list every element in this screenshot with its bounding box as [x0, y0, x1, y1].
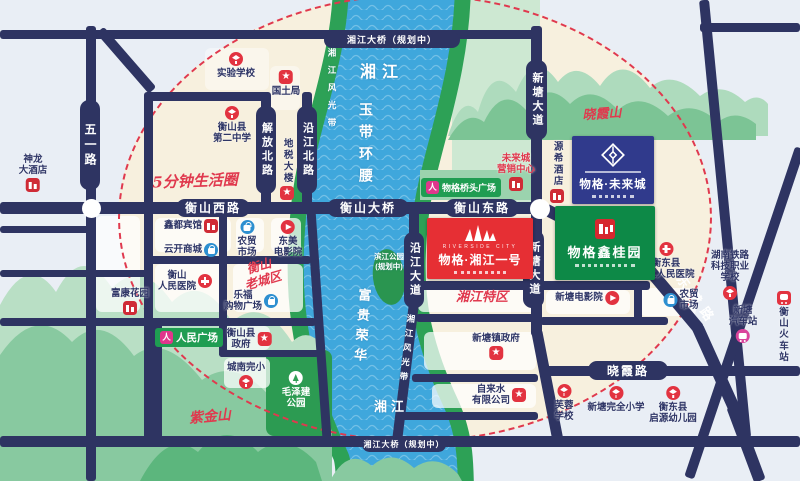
poi-label: 富康花园 [111, 288, 149, 299]
poi-label: 神龙 大酒店 [19, 154, 48, 176]
location-map: 五一路 解放北路 沿江北路 衡山西路 衡山大桥 衡山东路 新塘大道 新塘大道 沿… [0, 0, 800, 481]
poi-label: 新塘 汽车站 [729, 305, 758, 327]
poi-cine: 新塘电影院 [555, 291, 619, 305]
road-label-hengshanbridge: 衡山大桥 [327, 199, 409, 217]
road-label-yanjiangbei: 沿江北路 [297, 106, 317, 194]
poi-shop: 农贸 市场 [663, 289, 698, 311]
poi-label: 地税大楼 [281, 138, 292, 184]
poi-label: 城南完小 [227, 362, 265, 373]
riverside-eyebrow: RIVERSIDE CITY [443, 244, 518, 250]
tree-icon [289, 371, 303, 385]
poi-cine: 东美 电影院 [274, 220, 303, 258]
road-northeast [700, 23, 800, 32]
road-xiaoxia [540, 366, 800, 376]
junction-circle [82, 199, 101, 218]
qiaotou-plaza: 物格桥头广场 [421, 178, 501, 197]
riverside-logo-icon [462, 224, 498, 242]
poi-hotel: 源希酒店 [550, 141, 564, 203]
road-grid-east [416, 314, 538, 322]
poi-school: 芙蓉 学校 [554, 384, 573, 422]
poi-school: 衡山县 第二中学 [213, 106, 251, 144]
school-icon [557, 384, 571, 398]
micro-text-dots [592, 195, 634, 198]
poi-label: 衡东县 启源幼儿园 [649, 402, 697, 424]
star-icon [512, 388, 526, 402]
bus-icon [736, 329, 750, 343]
school-icon [666, 386, 680, 400]
hotel-icon [204, 219, 218, 233]
poi-school: 衡东县 启源幼儿园 [649, 386, 697, 424]
poi-shop: 云开商城 [164, 243, 218, 257]
poi-label: 芙蓉 学校 [554, 400, 573, 422]
road-grid-east [634, 281, 642, 325]
scenic-belt-west: 湘江风光带 [326, 48, 338, 136]
road-grid-east [402, 412, 538, 420]
micro-text-dots [454, 271, 506, 274]
bldg-icon [509, 177, 523, 191]
qiaotou-plaza-label: 物格桥头广场 [442, 181, 496, 194]
poi-shop: 乐福 购物广场 [224, 290, 278, 312]
poi-label: 农贸 市场 [237, 236, 256, 258]
hosp-icon [198, 274, 212, 288]
road-grid [146, 92, 270, 101]
poi-bus: 新塘 汽车站 [729, 305, 758, 343]
poi-school: 新塘完全小学 [587, 386, 644, 413]
star-icon [279, 70, 293, 84]
poi-school: 湖南铁路 科技职业 学校 [711, 250, 749, 300]
poi-label: 衡山县 第二中学 [213, 122, 251, 144]
school-icon [609, 386, 623, 400]
poi-train: 衡山 火车站 [776, 291, 792, 363]
river-name-top: 湘江 [360, 58, 404, 82]
road-label-xintang-n: 新塘大道 [526, 60, 547, 140]
road-label-hengshandong: 衡山东路 [445, 199, 519, 217]
school-icon [229, 52, 243, 66]
road-grid-east [416, 281, 538, 290]
poi-tree: 毛泽建 公园 [282, 371, 311, 409]
poi-label: 湖南铁路 科技职业 学校 [711, 250, 749, 284]
junction-circle [530, 199, 550, 219]
poi-label: 鑫都宾馆 [164, 220, 202, 231]
poi-label: 新塘镇政府 [472, 333, 520, 344]
star-icon [280, 186, 294, 200]
renmin-plaza-label: 人民广场 [176, 330, 218, 345]
poi-label: 新塘电影院 [555, 292, 603, 303]
poi-label: 新塘完全小学 [587, 402, 644, 413]
bridge-label-planned-south: 湘江大桥（规划中） [362, 437, 446, 452]
river-text-yudai: 玉带环腰 [356, 102, 376, 190]
poi-label: 衡山 人民医院 [158, 270, 196, 292]
hotel-icon [550, 189, 564, 203]
poi-school: 实验学校 [217, 52, 255, 79]
school-icon [225, 106, 239, 120]
poi-star: 新塘镇政府 [472, 333, 520, 360]
road-label-yanjiangda: 沿江大道 [404, 232, 424, 308]
poi-star: 衡山县 政府 [227, 328, 272, 350]
poi-hotel: 神龙 大酒店 [19, 154, 48, 192]
project-card-xingui: 物格鑫桂园 [555, 206, 655, 280]
future-city-name: 物格·未来城 [579, 176, 646, 192]
train-icon [777, 291, 791, 305]
shop-icon [663, 293, 677, 307]
riverside-name: 物格·湘江一号 [439, 251, 522, 268]
road-grid [219, 350, 319, 357]
poi-label: 云开商城 [164, 244, 202, 255]
poi-label: 源希酒店 [551, 141, 562, 187]
poi-hosp: 衡山 人民医院 [158, 270, 212, 292]
school-icon [723, 286, 737, 300]
poi-star: 地税大楼 [280, 138, 294, 200]
micro-text-bar [585, 171, 641, 173]
road-grid [0, 226, 91, 233]
micro-text-dots [575, 264, 635, 267]
cine-icon [605, 291, 619, 305]
cine-icon [281, 220, 295, 234]
script-xiangjiang-tequ: 湘江特区 [447, 290, 517, 306]
project-card-future-city: 物格·未来城 [572, 136, 654, 204]
poi-label: 自来水 有限公司 [472, 384, 510, 406]
renmin-plaza: 人民广场 [155, 328, 223, 347]
script-five-minute: 5分钟生活圈 [145, 170, 246, 191]
road-wuyi [86, 26, 96, 481]
shop-icon [204, 243, 218, 257]
poi-label: 国土局 [272, 86, 301, 97]
poi-bldg: 未来城 营销中心 [497, 153, 535, 191]
hosp-icon [659, 242, 673, 256]
poi-label: 实验学校 [217, 68, 255, 79]
poi-label: 乐福 购物广场 [224, 290, 262, 312]
road-grid-east [412, 374, 538, 382]
road-label-hengshanxi: 衡山西路 [176, 199, 250, 217]
river-name-bottom: 湘江 [374, 396, 408, 415]
poi-star: 自来水 有限公司 [472, 384, 526, 406]
star-icon [489, 346, 503, 360]
plaza-icon [160, 331, 173, 344]
shop-icon [240, 220, 254, 234]
island-label: 滨江公园 (规划中) [371, 252, 407, 272]
poi-hotel: 鑫都宾馆 [164, 219, 218, 233]
xingui-logo-icon [595, 219, 615, 239]
bldg-icon [123, 301, 137, 315]
xingui-name: 物格鑫桂园 [567, 242, 642, 261]
poi-label: 农贸 市场 [679, 289, 698, 311]
star-icon [257, 332, 271, 346]
road-label-wuyi: 五一路 [80, 100, 100, 190]
shop-icon [264, 294, 278, 308]
bridge-label-planned-north: 湘江大桥（规划中） [324, 32, 460, 48]
road-grid [144, 92, 153, 445]
poi-school: 城南完小 [227, 362, 265, 389]
poi-star: 国土局 [272, 70, 301, 97]
plaza-icon [426, 181, 439, 194]
road-grid [0, 270, 150, 277]
poi-label: 东美 电影院 [274, 236, 303, 258]
project-card-riverside: RIVERSIDE CITY 物格·湘江一号 [427, 218, 533, 279]
road-label-jiefangbei: 解放北路 [256, 106, 276, 194]
hotel-icon [26, 178, 40, 192]
poi-label: 毛泽建 公园 [282, 387, 311, 409]
poi-label: 未来城 营销中心 [497, 153, 535, 175]
future-city-logo-icon [600, 142, 626, 168]
road-label-xiaoxia: 晓霞路 [588, 361, 668, 380]
poi-bldg: 富康花园 [111, 288, 149, 315]
school-icon [239, 375, 253, 389]
poi-label: 衡山 火车站 [776, 307, 792, 363]
road-grid-east [540, 317, 668, 325]
poi-label: 衡山县 政府 [227, 328, 256, 350]
poi-shop: 农贸 市场 [237, 220, 256, 258]
